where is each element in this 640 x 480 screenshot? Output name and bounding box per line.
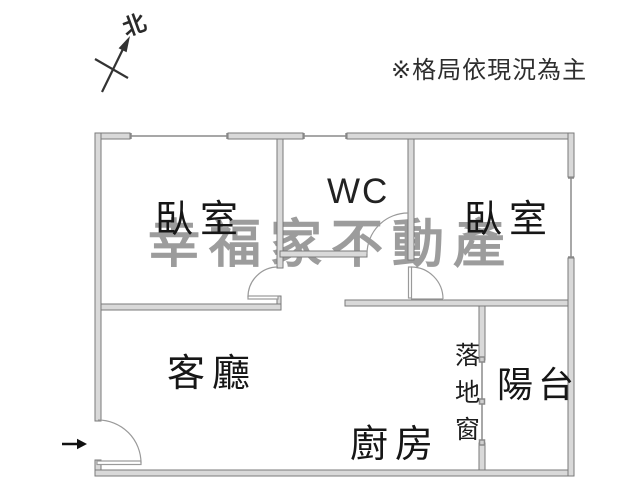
wall-top-segment-3 — [347, 133, 574, 139]
room-label-wc: WC — [327, 174, 389, 209]
room-label-kitchen: 廚房 — [350, 426, 440, 464]
disclaimer-note: ※格局依現況為主 — [391, 59, 587, 83]
bedroom-right-door-panel — [409, 267, 412, 298]
room-label-bedroom-right: 臥室 — [464, 201, 554, 239]
entry-arrow-icon — [62, 439, 87, 449]
wc-door-swing-arc — [367, 213, 408, 254]
wall-wc-bedroom-right — [408, 139, 414, 260]
wall-mid-right — [345, 300, 568, 306]
wall-wc-bottom — [280, 251, 367, 257]
wall-top-segment-2 — [228, 133, 303, 139]
entry-door-swing-arc — [98, 420, 141, 463]
entry-door-panel — [97, 461, 141, 465]
room-label-balcony: 陽台 — [497, 367, 579, 403]
wall-left-upper — [95, 133, 101, 421]
floor-plan: 幸福家不動產 — [0, 0, 640, 480]
wall-living-top — [101, 304, 281, 310]
label-floor-window: 落地窗 — [454, 338, 481, 449]
wall-bedroom-left-wc — [277, 139, 283, 268]
bedroom-right-door-swing-arc — [411, 267, 443, 299]
bedroom-left-door-swing-arc — [248, 267, 278, 297]
wall-right-upper — [568, 133, 574, 177]
room-label-bedroom-left: 臥室 — [155, 201, 245, 239]
room-label-living-room: 客廳 — [167, 355, 257, 393]
compass-north-icon — [95, 36, 130, 92]
wall-bottom — [95, 470, 574, 476]
bedroom-left-door-panel — [248, 296, 278, 299]
